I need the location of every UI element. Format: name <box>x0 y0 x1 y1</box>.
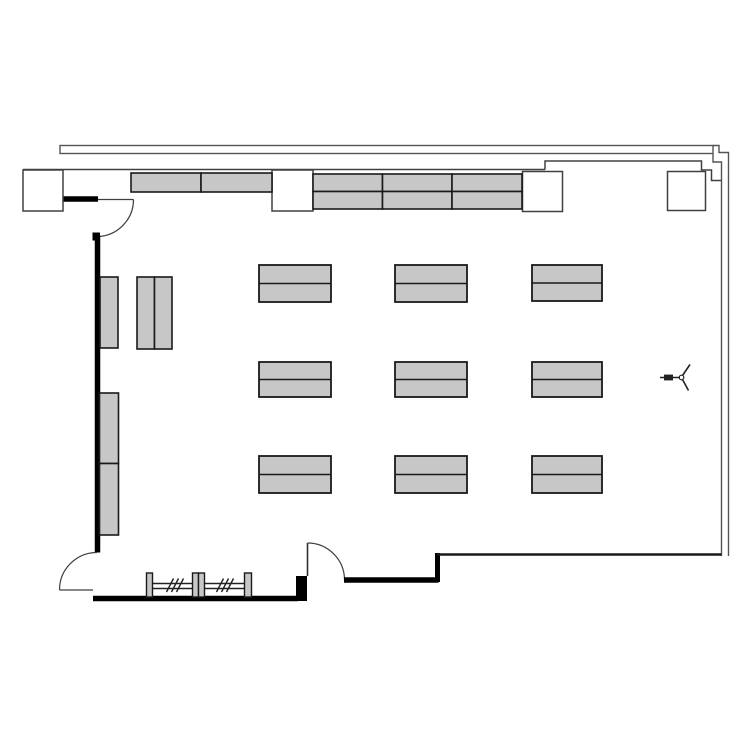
floor-plan-drawing <box>0 0 750 750</box>
cabinet <box>100 277 118 348</box>
cabinet <box>155 277 173 349</box>
west-wall-cabinets <box>100 277 173 535</box>
south-wall-stub <box>296 576 307 601</box>
pier <box>272 170 313 211</box>
fan-symbol <box>660 365 690 391</box>
inner-right-wall <box>713 154 722 557</box>
rail-post <box>245 573 252 597</box>
desk-grid <box>259 265 602 493</box>
counter-segment <box>452 174 522 192</box>
counter-segment <box>201 173 272 192</box>
door-swing-arc-bottom-left <box>60 553 98 591</box>
north-wall-counters <box>131 173 522 209</box>
cabinet <box>100 393 119 464</box>
cabinet <box>137 277 155 349</box>
pier <box>23 170 63 211</box>
rail-post <box>199 573 205 597</box>
outer-right-wall <box>713 146 729 557</box>
counter-segment <box>383 192 453 210</box>
south-railing <box>147 573 252 597</box>
pier <box>523 172 563 212</box>
counter-segment <box>313 174 383 192</box>
counter-segment <box>452 192 522 210</box>
cabinet <box>100 464 119 536</box>
door-swing-arc-bottom-middle <box>308 543 345 580</box>
pier <box>668 172 706 211</box>
door-swing-arc-top-left <box>97 200 134 237</box>
counter-segment <box>131 173 201 192</box>
top-window-band <box>60 146 713 154</box>
rail-post <box>147 573 153 597</box>
rail-post <box>193 573 199 597</box>
counter-segment <box>313 192 383 210</box>
walls-and-openings <box>23 146 729 602</box>
floor-plan <box>0 0 750 750</box>
counter-segment <box>383 174 453 192</box>
